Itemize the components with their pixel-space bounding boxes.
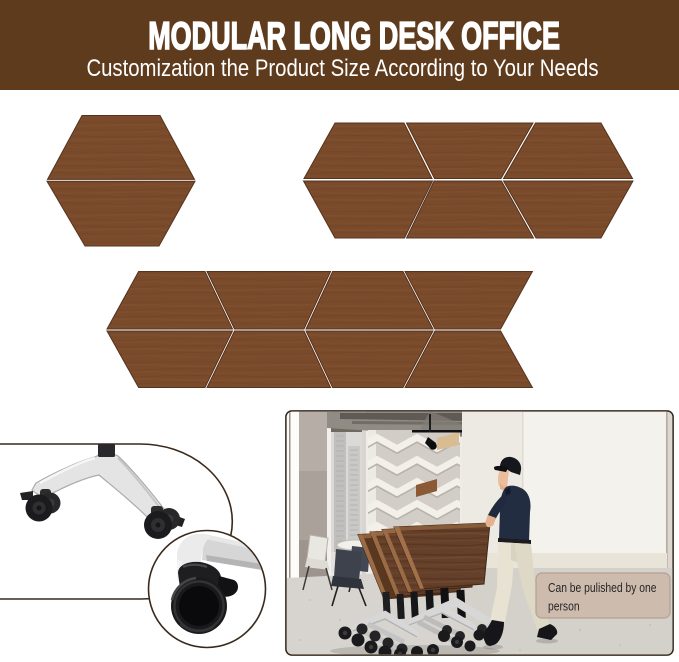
- svg-text:person: person: [548, 601, 580, 614]
- svg-text:Can be pulished by one: Can be pulished by one: [548, 582, 657, 595]
